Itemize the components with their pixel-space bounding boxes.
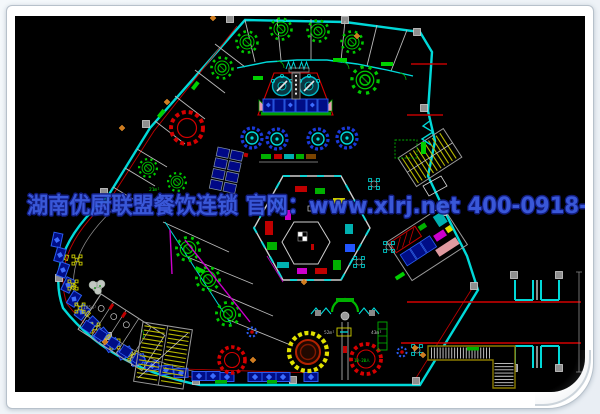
structural-columns bbox=[56, 16, 478, 385]
dining-round-tables-cyan bbox=[242, 128, 357, 149]
cad-drawing-area: 21m²185m²52m²43m²10-20人 湖南优厨联盟餐饮连锁 官网：ww… bbox=[15, 16, 585, 392]
screenshot-root: 21m²185m²52m²43m²10-20人 湖南优厨联盟餐饮连锁 官网：ww… bbox=[0, 0, 600, 414]
entrance-foyer bbox=[248, 298, 407, 380]
room-label: 52m² bbox=[324, 330, 335, 336]
banquet-table-red bbox=[171, 112, 203, 144]
exterior-walkway bbox=[428, 346, 515, 388]
room-label: 10-20人 bbox=[354, 358, 370, 363]
reception-bar-zone bbox=[258, 62, 333, 115]
misc-fixtures bbox=[102, 16, 426, 384]
page-curl-corner bbox=[535, 350, 591, 406]
room-label: 43m² bbox=[371, 330, 382, 336]
room-label: 185m² bbox=[83, 305, 97, 311]
staircase-left bbox=[134, 322, 193, 389]
room-label: 21m² bbox=[149, 187, 160, 193]
floorplan-canvas: 21m²185m²52m²43m²10-20人 bbox=[15, 16, 585, 392]
staircase-right bbox=[398, 129, 462, 187]
banquet-tables-bottom bbox=[219, 333, 381, 374]
plant-tree bbox=[89, 280, 105, 295]
central-hexagon-kitchen bbox=[254, 154, 370, 280]
kitchen-block-right bbox=[387, 206, 467, 281]
photo-frame: 21m²185m²52m²43m²10-20人 湖南优厨联盟餐饮连锁 官网：ww… bbox=[6, 5, 594, 409]
